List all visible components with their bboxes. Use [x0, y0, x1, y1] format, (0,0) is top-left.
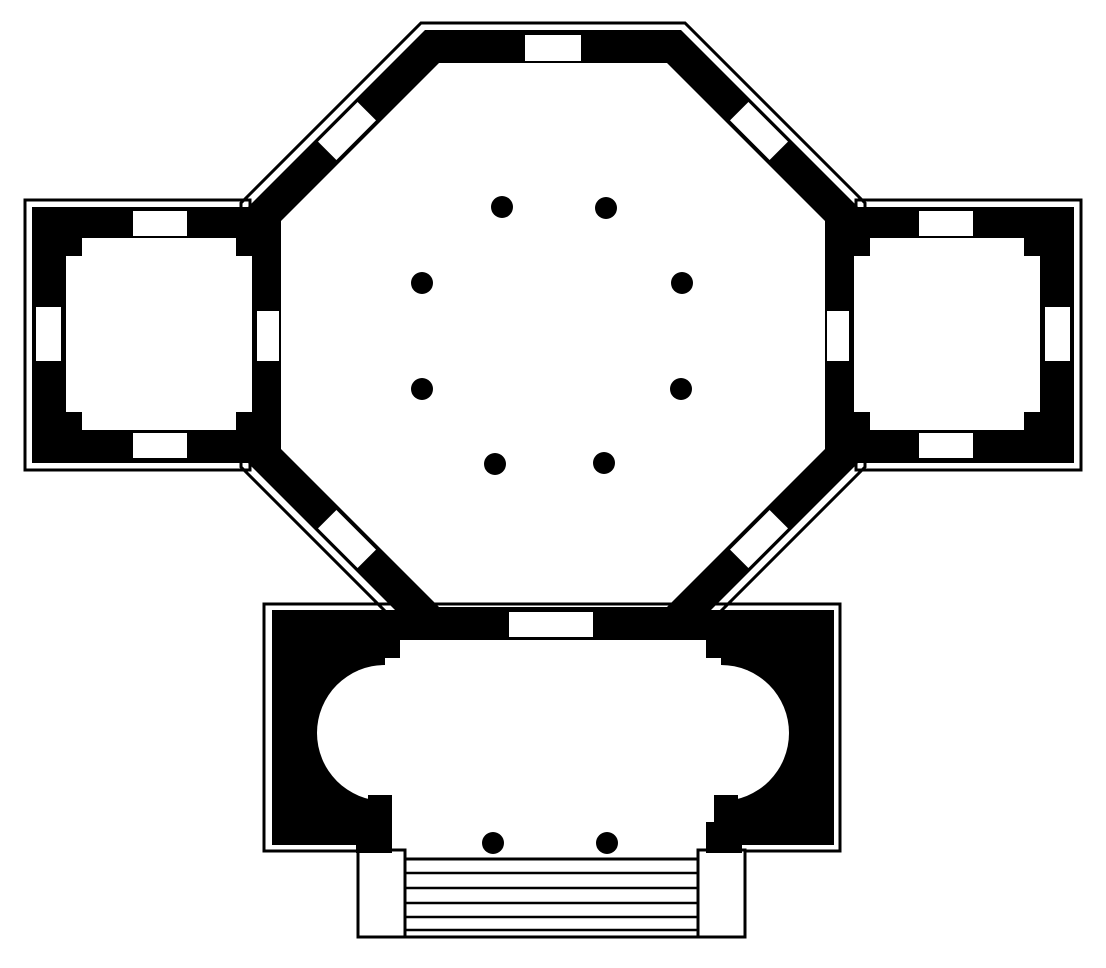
rotunda-column-8	[593, 452, 615, 474]
octagon-outer-outline	[241, 23, 865, 647]
rotunda-column-7	[484, 453, 506, 475]
steps-outline	[405, 859, 698, 937]
right-chamber-niche-south	[919, 433, 973, 458]
porch-column-right	[596, 832, 618, 854]
rotunda-column-2	[595, 197, 617, 219]
rotunda-column-1	[491, 196, 513, 218]
left-chamber-niche-north	[133, 211, 187, 236]
right-chamber-niche-north	[919, 211, 973, 236]
rotunda-column-4	[671, 272, 693, 294]
porch-column-left	[482, 832, 504, 854]
vestibule-hall-top	[400, 640, 706, 660]
right-chamber-corner-pier-sw	[854, 412, 870, 430]
right-apse	[653, 665, 789, 801]
porch-wall-stub-right-lower	[706, 822, 742, 853]
rotunda-column-5	[411, 378, 433, 400]
right-chamber-corner-pier-se	[1024, 412, 1040, 430]
left-chamber-corner-pier-sw	[66, 412, 82, 430]
octagon-south-doorway	[509, 612, 593, 637]
porch-pier-left	[358, 850, 405, 937]
porch-wall-stub-left-lower	[356, 822, 392, 853]
right-chamber-niche-east	[1045, 307, 1070, 361]
left-chamber-corner-pier-ne	[236, 238, 252, 256]
left-chamber-doorway	[257, 311, 279, 361]
rotunda-column-3	[411, 272, 433, 294]
rotunda-column-6	[670, 378, 692, 400]
porch-pier-right	[698, 850, 745, 937]
left-chamber-room	[66, 238, 252, 430]
left-chamber-corner-pier-se	[236, 412, 252, 430]
octagon-window-north	[525, 35, 581, 61]
right-chamber-corner-pier-ne	[1024, 238, 1040, 256]
floor-plan-svg	[0, 0, 1106, 968]
left-chamber-niche-south	[133, 433, 187, 458]
floor-plan-figure	[0, 0, 1106, 968]
left-apse	[317, 665, 453, 801]
left-chamber-corner-pier-nw	[66, 238, 82, 256]
porch-wall-stub-right-upper	[714, 795, 738, 826]
right-chamber-corner-pier-nw	[854, 238, 870, 256]
left-chamber-niche-west	[36, 307, 61, 361]
porch-wall-stub-left-upper	[368, 795, 392, 826]
right-chamber-room	[854, 238, 1040, 430]
right-chamber-doorway	[827, 311, 849, 361]
